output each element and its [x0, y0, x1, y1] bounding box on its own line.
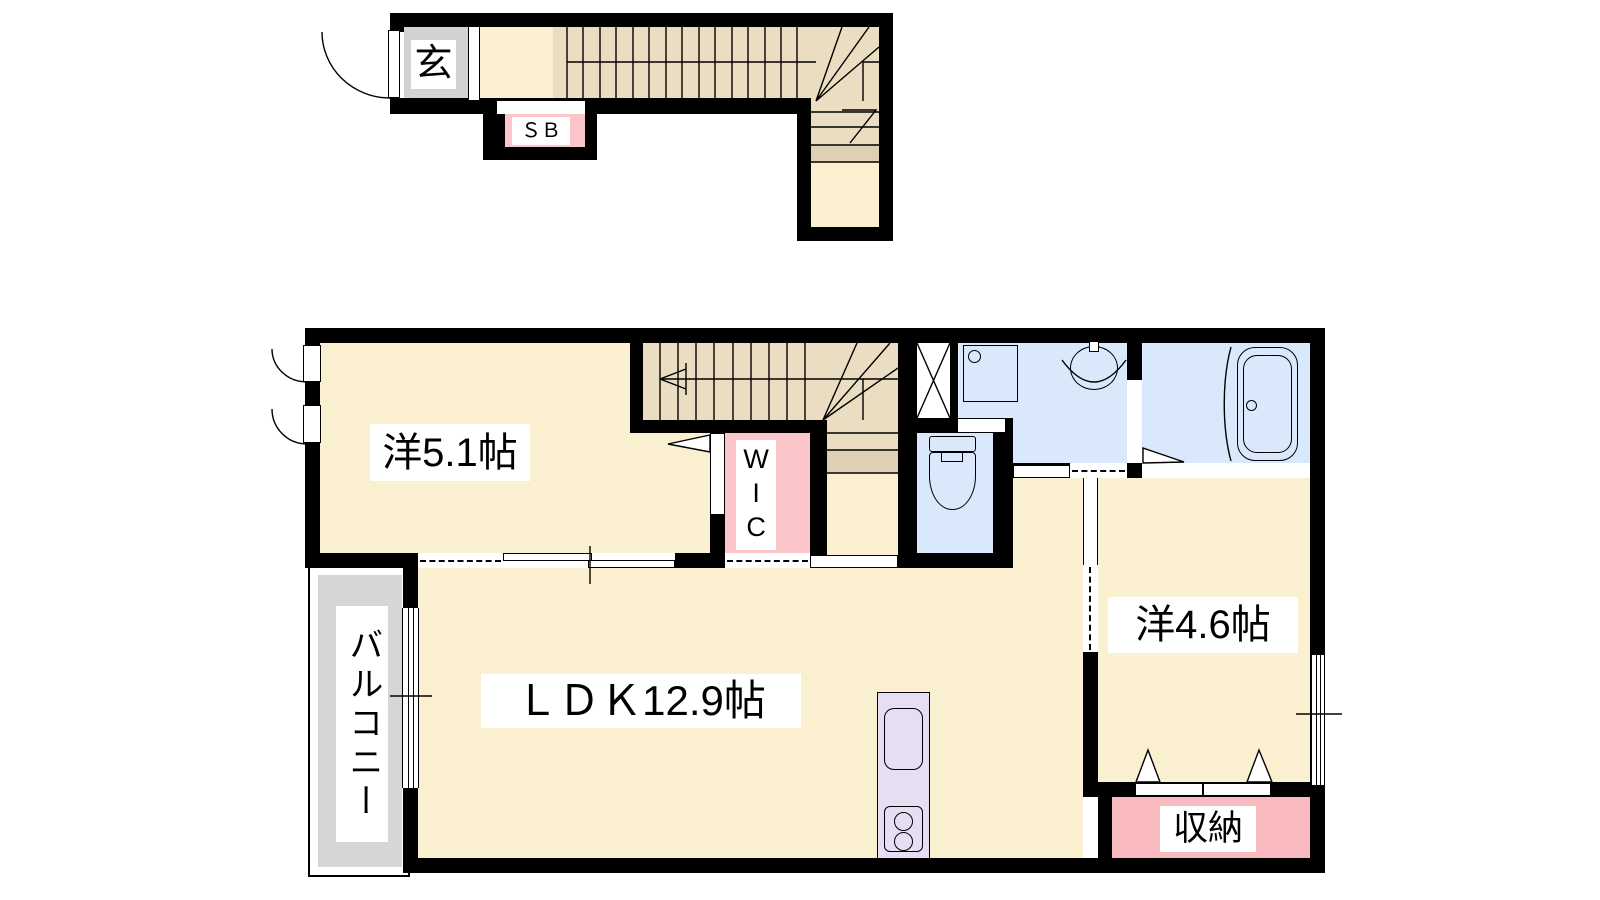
bedroom1-label: 洋5.1帖 [370, 424, 530, 481]
entrance-label: 玄 [411, 40, 456, 89]
bathtub-apron-curve [1224, 347, 1231, 461]
stair-steps-2f [660, 343, 898, 473]
washbasin-arc [1062, 360, 1126, 382]
pipe-space-x [917, 343, 950, 418]
ldk-label: ＬＤＫ12.9帖 [481, 674, 801, 728]
floor-plan: ＳＢ 玄 [0, 0, 1600, 900]
stair-steps-1f [567, 27, 879, 162]
folding-door-swing [1136, 750, 1160, 782]
entry-door-arc [322, 32, 390, 98]
bedroom2-label: 洋4.6帖 [1108, 597, 1298, 653]
wic-door-swing [668, 435, 710, 452]
linework-overlay [0, 0, 1600, 900]
storage-label: 収納 [1160, 806, 1256, 852]
folding-door-swing [1247, 750, 1272, 782]
balcony-label: バルコニー [336, 606, 388, 842]
window-arc [272, 349, 306, 382]
window-arc [272, 409, 306, 444]
bath-door-swing [1143, 448, 1184, 463]
shoe-box-label: ＳＢ [512, 117, 570, 145]
wic-label: WIC [736, 440, 776, 550]
